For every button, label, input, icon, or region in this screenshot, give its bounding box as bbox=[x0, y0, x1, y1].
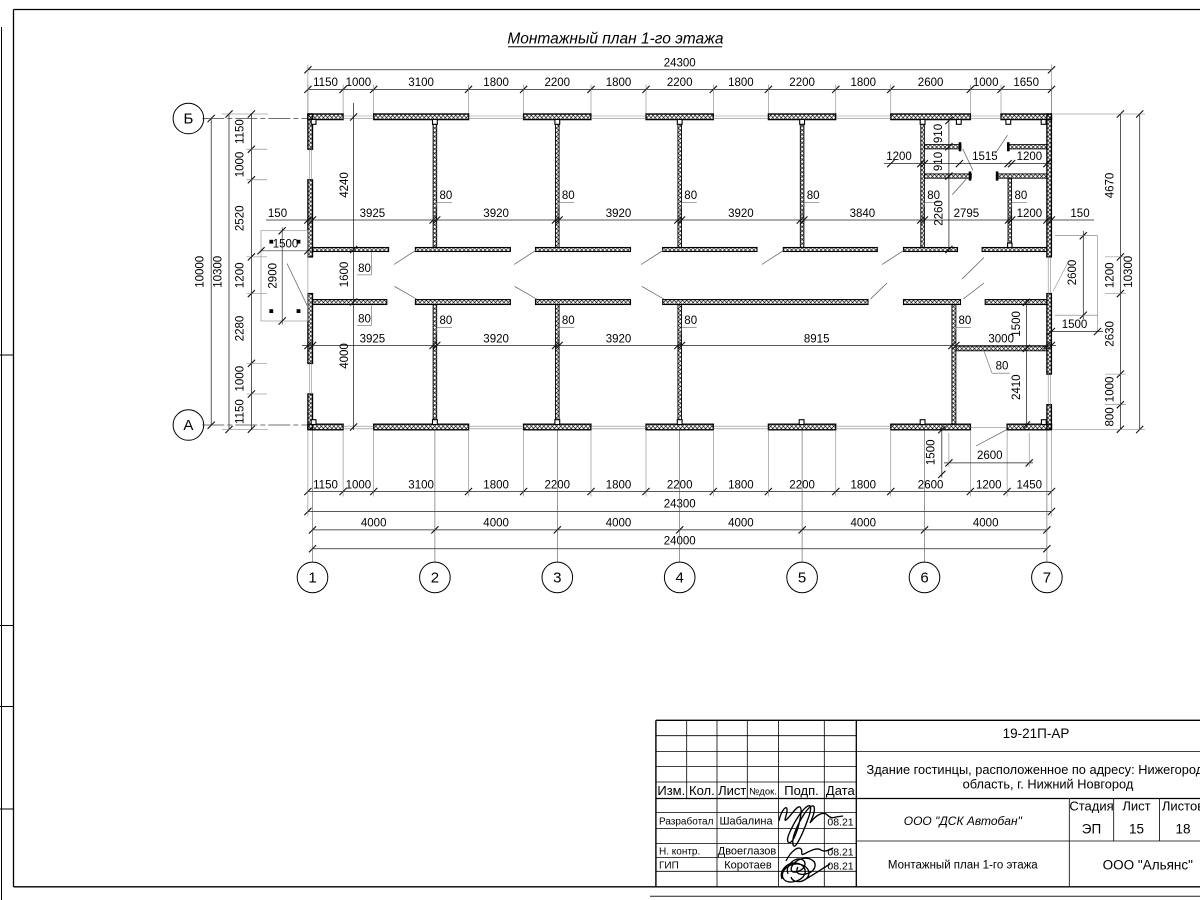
svg-text:2410: 2410 bbox=[1011, 374, 1023, 400]
svg-text:4670: 4670 bbox=[1105, 173, 1117, 199]
svg-text:1600: 1600 bbox=[339, 262, 351, 288]
svg-text:4000: 4000 bbox=[483, 517, 509, 529]
svg-text:80: 80 bbox=[358, 313, 371, 325]
svg-text:1200: 1200 bbox=[235, 263, 247, 289]
svg-text:2600: 2600 bbox=[918, 77, 944, 89]
svg-text:8915: 8915 bbox=[804, 334, 830, 346]
svg-text:№док.: №док. bbox=[749, 786, 777, 797]
svg-text:4000: 4000 bbox=[851, 517, 877, 529]
svg-text:150: 150 bbox=[268, 208, 287, 220]
svg-text:3920: 3920 bbox=[606, 334, 632, 346]
svg-text:1000: 1000 bbox=[235, 366, 247, 392]
svg-text:2600: 2600 bbox=[918, 480, 944, 492]
svg-text:Лист: Лист bbox=[718, 783, 746, 798]
svg-text:3920: 3920 bbox=[483, 334, 509, 346]
svg-text:1000: 1000 bbox=[346, 480, 372, 492]
svg-text:1515: 1515 bbox=[972, 151, 998, 163]
svg-text:4: 4 bbox=[676, 570, 684, 587]
svg-text:ООО "ДСК Автобан": ООО "ДСК Автобан" bbox=[904, 814, 1023, 828]
svg-text:80: 80 bbox=[358, 263, 371, 275]
svg-text:2200: 2200 bbox=[545, 77, 571, 89]
svg-text:15: 15 bbox=[1129, 821, 1144, 836]
svg-text:1150: 1150 bbox=[235, 399, 247, 424]
svg-text:2520: 2520 bbox=[235, 206, 247, 232]
svg-text:19-21П-АР: 19-21П-АР bbox=[1003, 726, 1070, 741]
svg-text:80: 80 bbox=[440, 315, 453, 327]
svg-text:10300: 10300 bbox=[213, 256, 225, 288]
svg-text:80: 80 bbox=[684, 315, 697, 327]
svg-text:80: 80 bbox=[807, 190, 820, 202]
svg-text:800: 800 bbox=[1105, 407, 1117, 426]
svg-text:Стадия: Стадия bbox=[1069, 798, 1113, 813]
svg-text:4000: 4000 bbox=[606, 517, 632, 529]
svg-text:7: 7 bbox=[1043, 570, 1051, 587]
svg-text:1500: 1500 bbox=[925, 440, 937, 466]
svg-text:10000: 10000 bbox=[195, 256, 207, 288]
svg-text:3100: 3100 bbox=[408, 77, 434, 89]
svg-text:1800: 1800 bbox=[606, 77, 632, 89]
svg-text:2600: 2600 bbox=[1067, 260, 1079, 286]
svg-text:80: 80 bbox=[562, 190, 575, 202]
svg-text:область, г. Нижний Новгород: область, г. Нижний Новгород bbox=[963, 776, 1134, 791]
svg-text:Дата: Дата bbox=[826, 783, 856, 798]
svg-text:2795: 2795 bbox=[954, 208, 980, 220]
svg-text:3920: 3920 bbox=[606, 208, 632, 220]
svg-text:1800: 1800 bbox=[851, 77, 877, 89]
svg-text:3920: 3920 bbox=[728, 208, 754, 220]
svg-text:2260: 2260 bbox=[933, 200, 945, 226]
svg-text:1200: 1200 bbox=[976, 480, 1002, 492]
svg-text:Лист: Лист bbox=[1122, 798, 1150, 813]
svg-text:2900: 2900 bbox=[268, 263, 280, 289]
svg-text:08.21: 08.21 bbox=[827, 846, 853, 858]
svg-text:4000: 4000 bbox=[728, 517, 754, 529]
svg-text:ГИП: ГИП bbox=[659, 860, 679, 871]
svg-text:1000: 1000 bbox=[1105, 377, 1117, 403]
svg-text:Подп.: Подп. bbox=[784, 783, 819, 798]
svg-text:5: 5 bbox=[798, 570, 806, 587]
svg-text:4000: 4000 bbox=[973, 517, 999, 529]
svg-text:80: 80 bbox=[927, 190, 940, 202]
svg-text:1800: 1800 bbox=[483, 77, 509, 89]
svg-text:ООО "Альянс": ООО "Альянс" bbox=[1103, 857, 1193, 872]
svg-text:Шабалина: Шабалина bbox=[719, 815, 773, 827]
svg-text:1450: 1450 bbox=[1017, 480, 1043, 492]
svg-text:Н. контр.: Н. контр. bbox=[659, 846, 700, 857]
svg-text:3840: 3840 bbox=[850, 208, 876, 220]
svg-text:1200: 1200 bbox=[1105, 263, 1117, 289]
svg-text:1000: 1000 bbox=[973, 77, 999, 89]
svg-text:1800: 1800 bbox=[728, 77, 754, 89]
svg-text:4000: 4000 bbox=[361, 517, 387, 529]
svg-text:18: 18 bbox=[1175, 821, 1190, 836]
svg-text:910: 910 bbox=[933, 152, 945, 171]
svg-text:Листов: Листов bbox=[1162, 798, 1200, 813]
svg-text:1: 1 bbox=[308, 570, 316, 587]
svg-text:910: 910 bbox=[933, 124, 945, 143]
svg-text:2200: 2200 bbox=[667, 77, 693, 89]
svg-text:1150: 1150 bbox=[313, 77, 338, 89]
svg-text:2: 2 bbox=[431, 570, 439, 587]
svg-text:2200: 2200 bbox=[789, 77, 815, 89]
svg-text:Двоеглазов: Двоеглазов bbox=[718, 845, 777, 857]
svg-text:1000: 1000 bbox=[235, 152, 247, 178]
svg-text:1200: 1200 bbox=[886, 151, 912, 163]
svg-text:Здание гостинцы, расположенное: Здание гостинцы, расположенное по адресу… bbox=[866, 762, 1200, 777]
svg-text:1800: 1800 bbox=[728, 480, 754, 492]
svg-text:150: 150 bbox=[1070, 208, 1089, 220]
svg-text:3100: 3100 bbox=[408, 480, 434, 492]
svg-text:3: 3 bbox=[553, 570, 561, 587]
svg-text:80: 80 bbox=[959, 315, 972, 327]
svg-text:80: 80 bbox=[996, 361, 1009, 373]
svg-text:80: 80 bbox=[562, 315, 575, 327]
svg-text:Б: Б bbox=[183, 111, 193, 128]
svg-text:Разработал: Разработал bbox=[659, 815, 714, 827]
svg-text:1800: 1800 bbox=[606, 480, 632, 492]
svg-text:80: 80 bbox=[1015, 190, 1028, 202]
svg-text:Монтажный план 1-го этажа: Монтажный план 1-го этажа bbox=[888, 859, 1038, 871]
svg-text:А: А bbox=[183, 417, 193, 434]
svg-text:ЭП: ЭП bbox=[1082, 821, 1101, 836]
svg-text:1650: 1650 bbox=[1013, 77, 1039, 89]
svg-text:1200: 1200 bbox=[1017, 208, 1043, 220]
svg-text:4240: 4240 bbox=[339, 172, 351, 198]
svg-text:1000: 1000 bbox=[346, 77, 372, 89]
svg-text:80: 80 bbox=[684, 190, 697, 202]
svg-text:Монтажный план 1-го этажа: Монтажный план 1-го этажа bbox=[507, 31, 723, 48]
svg-text:24300: 24300 bbox=[664, 57, 696, 69]
svg-text:1500: 1500 bbox=[273, 239, 299, 251]
svg-text:2280: 2280 bbox=[235, 316, 247, 342]
svg-text:80: 80 bbox=[440, 190, 453, 202]
svg-text:2600: 2600 bbox=[977, 450, 1003, 462]
svg-text:1200: 1200 bbox=[1017, 151, 1043, 163]
svg-text:1500: 1500 bbox=[1062, 319, 1088, 331]
svg-text:10300: 10300 bbox=[1123, 256, 1135, 288]
svg-text:1800: 1800 bbox=[851, 480, 877, 492]
svg-text:Изм.: Изм. bbox=[657, 783, 685, 798]
svg-text:3925: 3925 bbox=[360, 334, 386, 346]
svg-text:Кол.: Кол. bbox=[689, 783, 715, 798]
svg-text:08.21: 08.21 bbox=[827, 860, 853, 872]
svg-text:Коротаев: Коротаев bbox=[724, 859, 772, 871]
svg-text:4000: 4000 bbox=[339, 343, 351, 369]
svg-text:3925: 3925 bbox=[360, 208, 386, 220]
svg-text:1150: 1150 bbox=[235, 119, 247, 144]
svg-text:1800: 1800 bbox=[483, 480, 509, 492]
svg-text:1150: 1150 bbox=[313, 480, 338, 492]
svg-text:2630: 2630 bbox=[1105, 321, 1117, 347]
svg-text:1500: 1500 bbox=[1011, 311, 1023, 337]
svg-text:3920: 3920 bbox=[483, 208, 509, 220]
svg-text:6: 6 bbox=[920, 570, 928, 587]
